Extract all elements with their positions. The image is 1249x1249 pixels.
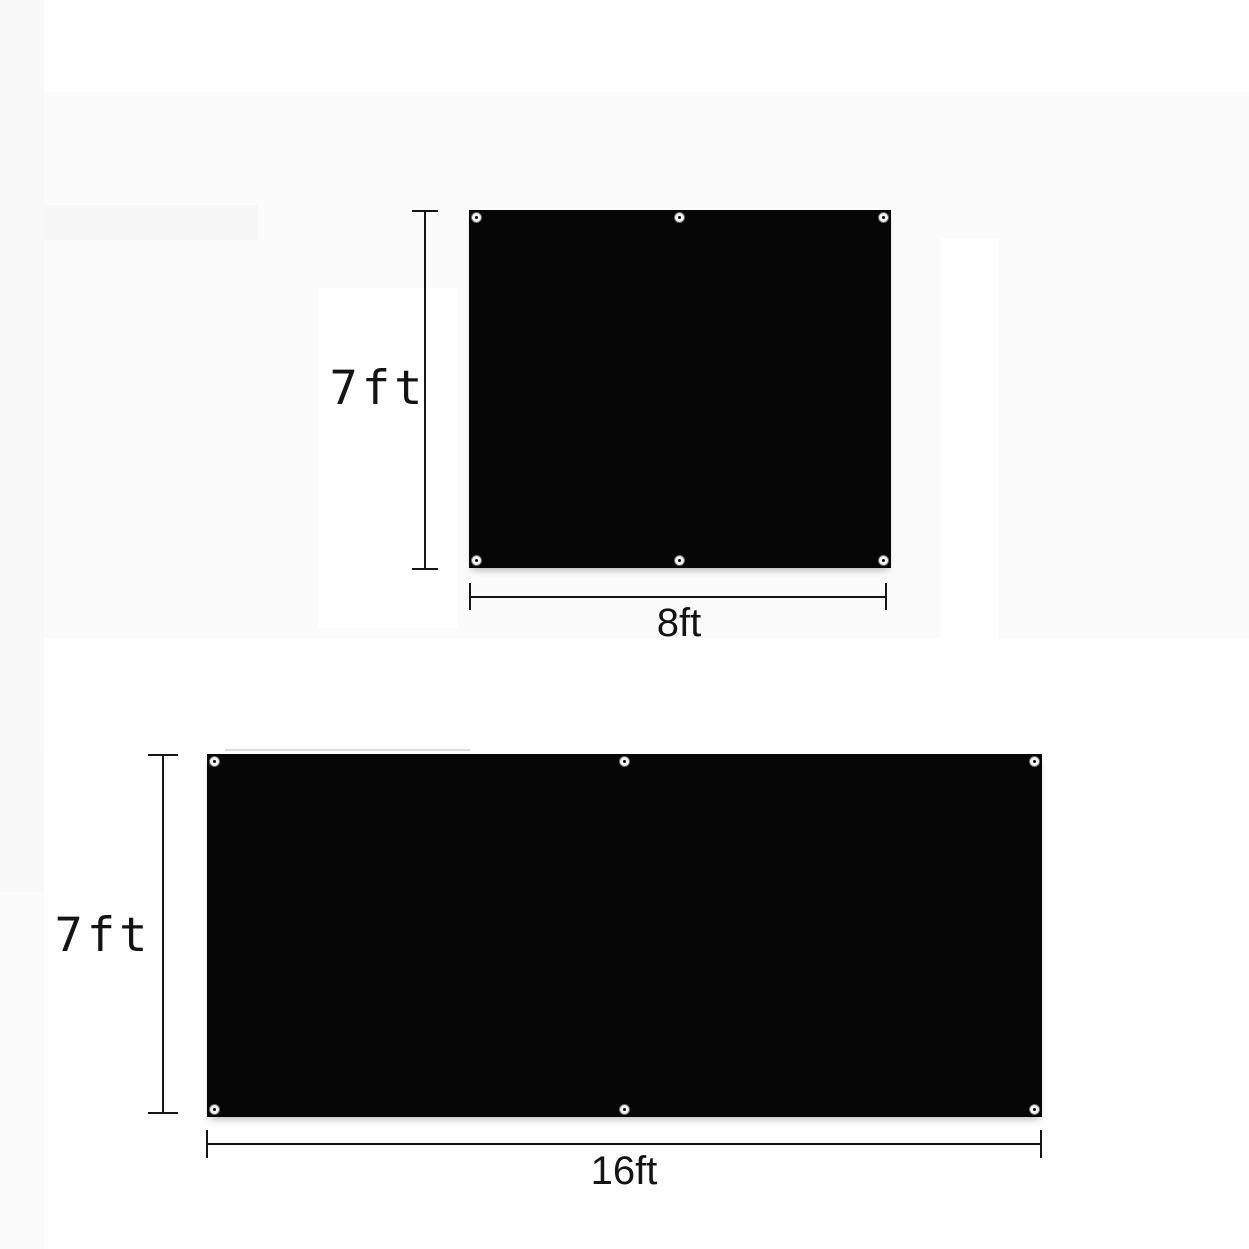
grommet-icon [674, 212, 685, 223]
dimension-end-cap [148, 1112, 178, 1114]
grommet-icon [878, 555, 889, 566]
background-patch [44, 638, 1249, 750]
grommet-icon [619, 1104, 630, 1115]
grommet-icon [471, 212, 482, 223]
tarp-panel-8x7 [469, 210, 891, 568]
grommet-icon [1029, 756, 1040, 767]
background-patch [44, 205, 258, 240]
product-dimension-diagram: 7ft 8ft 7ft 16ft [0, 0, 1249, 1249]
dimension-end-tick [885, 583, 887, 610]
background-patch [44, 0, 1249, 92]
grommet-icon [878, 212, 889, 223]
dimension-line [469, 596, 887, 598]
dimension-line [206, 1143, 1042, 1145]
grommet-icon [1029, 1104, 1040, 1115]
dimension-end-cap [412, 568, 438, 570]
background-patch [0, 0, 44, 892]
background-patch [941, 238, 999, 666]
grommet-icon [209, 756, 220, 767]
height-label: 7ft [43, 910, 163, 962]
tarp-panel-16x7 [207, 754, 1042, 1117]
height-label: 7ft [318, 363, 438, 415]
grommet-icon [471, 555, 482, 566]
grommet-icon [619, 756, 630, 767]
dimension-end-tick [1040, 1130, 1042, 1158]
width-label: 8ft [619, 601, 739, 645]
fold-artifact-line [225, 749, 470, 751]
grommet-icon [674, 555, 685, 566]
width-label: 16ft [564, 1149, 684, 1193]
grommet-icon [209, 1104, 220, 1115]
